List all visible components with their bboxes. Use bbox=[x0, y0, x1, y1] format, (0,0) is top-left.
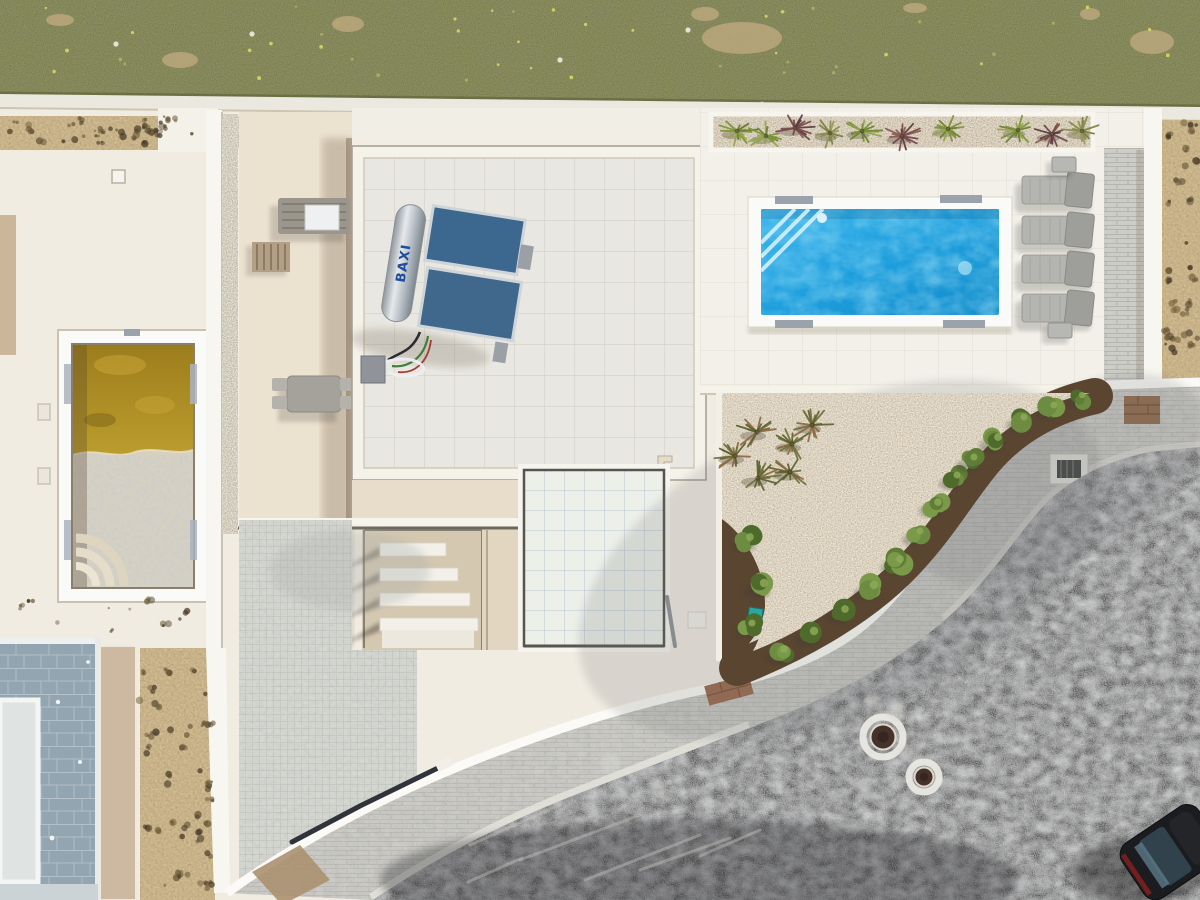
weed bbox=[1164, 343, 1167, 346]
grass-flower bbox=[65, 49, 69, 53]
weed bbox=[204, 850, 210, 856]
weed bbox=[1174, 336, 1181, 343]
grass-flower bbox=[631, 29, 634, 32]
skimmer-lid bbox=[817, 213, 827, 223]
weed bbox=[142, 126, 146, 130]
weed bbox=[1173, 306, 1181, 314]
weed bbox=[1161, 328, 1167, 334]
weed bbox=[141, 669, 145, 673]
weed bbox=[1188, 265, 1193, 270]
murky-blotch bbox=[135, 396, 175, 414]
white-stone bbox=[557, 57, 562, 62]
shrub-highlight bbox=[780, 645, 788, 653]
weed bbox=[1188, 127, 1195, 134]
chalk-mark bbox=[865, 693, 879, 707]
water-edge-shade bbox=[761, 209, 999, 219]
weed bbox=[79, 121, 84, 126]
weed bbox=[177, 875, 181, 879]
grass-flower bbox=[497, 63, 500, 66]
weed bbox=[1185, 301, 1192, 308]
grass-flower bbox=[453, 17, 456, 20]
shrub-highlight bbox=[934, 498, 942, 506]
weed bbox=[208, 880, 212, 884]
lounger-backrest bbox=[1064, 290, 1094, 327]
weed bbox=[197, 768, 202, 773]
pool-grate bbox=[64, 364, 71, 404]
wall-shadow-on-deck bbox=[1136, 150, 1144, 390]
grass-flower bbox=[980, 62, 983, 65]
weed bbox=[1168, 300, 1175, 307]
shrub-highlight bbox=[896, 555, 904, 563]
roof-hatch-marker bbox=[112, 170, 125, 183]
grass-flower bbox=[512, 10, 515, 13]
weed bbox=[1182, 162, 1189, 169]
plant-center bbox=[789, 441, 794, 446]
main-roof: BAXI bbox=[348, 138, 706, 480]
mid-wall bbox=[482, 530, 522, 650]
grass-flower bbox=[733, 32, 735, 34]
shrub-highlight bbox=[1051, 402, 1058, 409]
weed bbox=[1192, 158, 1198, 164]
aerial-photo-stage: BAXI bbox=[0, 0, 1200, 900]
grass-flower bbox=[376, 73, 380, 77]
weed bbox=[1165, 267, 1172, 274]
weed bbox=[144, 598, 150, 604]
grass-flower bbox=[1052, 22, 1055, 25]
weed bbox=[12, 121, 15, 124]
roof-speck bbox=[50, 836, 55, 841]
chalk-mark bbox=[600, 752, 620, 772]
weed bbox=[1164, 335, 1170, 341]
grass-flower bbox=[123, 62, 126, 65]
weed bbox=[167, 726, 174, 733]
plant-leaf bbox=[830, 134, 831, 140]
weed bbox=[1181, 331, 1188, 338]
utility-block bbox=[38, 468, 50, 484]
grass-flower bbox=[248, 49, 252, 53]
weed bbox=[1186, 198, 1193, 205]
plant-leaf bbox=[950, 128, 956, 129]
grass-flower bbox=[811, 6, 814, 9]
shrub-highlight bbox=[810, 627, 818, 635]
grass-flower bbox=[783, 71, 786, 74]
dirt-patch bbox=[691, 7, 719, 21]
roof-speck bbox=[56, 700, 60, 704]
grass-flower bbox=[335, 21, 338, 24]
weed bbox=[1168, 345, 1175, 352]
weed bbox=[145, 825, 151, 831]
weed bbox=[184, 732, 190, 738]
plant-leaf bbox=[1054, 133, 1060, 134]
weed bbox=[67, 124, 71, 128]
plant-center bbox=[754, 429, 759, 434]
plant-center bbox=[732, 453, 737, 458]
grass-flower bbox=[552, 8, 555, 11]
plant-center bbox=[764, 134, 769, 139]
grass-flower bbox=[781, 10, 785, 14]
chair bbox=[272, 378, 287, 391]
weed bbox=[27, 600, 30, 603]
weed bbox=[97, 135, 100, 138]
dirt-patch bbox=[903, 3, 927, 13]
shrub-highlight bbox=[1021, 414, 1028, 421]
grass-flower bbox=[584, 23, 587, 26]
weed bbox=[1194, 277, 1198, 281]
weed bbox=[165, 118, 171, 124]
roof-speck bbox=[78, 760, 82, 764]
weed bbox=[164, 780, 172, 788]
grass-flower bbox=[765, 15, 768, 18]
utility-block bbox=[38, 404, 50, 420]
grass-flower bbox=[1086, 6, 1090, 10]
perimeter-wall-right bbox=[1144, 108, 1162, 390]
shrub-highlight bbox=[870, 581, 878, 589]
weed bbox=[1166, 201, 1171, 206]
grass-flower bbox=[351, 58, 354, 61]
pool-grate bbox=[775, 196, 813, 204]
plant-leaf bbox=[890, 136, 900, 137]
shrub-highlight bbox=[954, 472, 961, 479]
plant-leaf bbox=[862, 132, 863, 138]
weed bbox=[197, 835, 204, 842]
construction-pool bbox=[38, 329, 208, 602]
grass-flower bbox=[319, 45, 323, 49]
plant-center bbox=[787, 469, 792, 474]
white-stone bbox=[685, 27, 690, 32]
grass-strip bbox=[0, 0, 1200, 108]
weed bbox=[205, 886, 210, 891]
weed bbox=[94, 130, 96, 132]
shrub-highlight bbox=[1079, 392, 1085, 398]
weed bbox=[174, 119, 177, 122]
plant-leaf bbox=[781, 128, 793, 129]
junction-box bbox=[361, 356, 385, 383]
weed bbox=[101, 131, 104, 134]
weed bbox=[203, 692, 207, 696]
weed bbox=[143, 750, 150, 757]
grass-flower bbox=[569, 75, 573, 79]
weed bbox=[158, 123, 165, 130]
weed bbox=[1166, 281, 1169, 284]
weed bbox=[181, 825, 187, 831]
weed bbox=[148, 734, 154, 740]
skimmer-lid bbox=[958, 261, 972, 275]
weed bbox=[31, 599, 35, 603]
grass-flower bbox=[530, 67, 533, 70]
weed bbox=[190, 132, 193, 135]
roof-speck bbox=[86, 660, 90, 664]
plant-leaf bbox=[794, 120, 795, 126]
weed bbox=[184, 608, 190, 614]
dirt-patch bbox=[162, 52, 198, 68]
grass-flower bbox=[491, 9, 494, 12]
weed bbox=[152, 685, 157, 690]
weed bbox=[201, 724, 204, 727]
tan-block bbox=[0, 215, 16, 355]
weed bbox=[188, 724, 193, 729]
ac-unit bbox=[305, 205, 339, 230]
lounger-table bbox=[1048, 323, 1072, 338]
grass-flower bbox=[707, 40, 710, 43]
weed bbox=[1184, 241, 1188, 245]
weed bbox=[178, 617, 181, 620]
weed bbox=[1185, 312, 1189, 316]
plant-leaf bbox=[814, 424, 833, 425]
weed bbox=[55, 620, 59, 624]
chair bbox=[272, 396, 287, 409]
pool-grate bbox=[943, 320, 985, 328]
weed bbox=[1166, 134, 1172, 140]
weed bbox=[133, 131, 140, 138]
weed bbox=[203, 880, 208, 885]
weed bbox=[1187, 341, 1193, 347]
weed bbox=[128, 608, 131, 611]
weed bbox=[1194, 123, 1198, 127]
wall-top-section bbox=[206, 110, 222, 648]
plant-center bbox=[809, 422, 814, 427]
dining-table bbox=[287, 376, 341, 412]
plant-leaf bbox=[1081, 132, 1082, 138]
dirt-patch bbox=[702, 22, 782, 54]
chalk-mark bbox=[653, 783, 667, 797]
grass-flower bbox=[775, 52, 778, 55]
weed bbox=[100, 141, 105, 146]
weed bbox=[185, 872, 191, 878]
weed bbox=[1182, 145, 1190, 153]
grass-flower bbox=[457, 29, 460, 32]
dirt-patch bbox=[46, 14, 74, 26]
weed bbox=[163, 884, 166, 887]
lounger-table bbox=[1052, 157, 1076, 172]
weed bbox=[210, 720, 215, 725]
chalk-mark bbox=[887, 703, 905, 721]
grass-flower bbox=[119, 58, 123, 62]
weed bbox=[40, 139, 47, 146]
grass-flower bbox=[786, 61, 789, 64]
grass-flower bbox=[269, 42, 273, 46]
weed bbox=[168, 775, 171, 778]
plant-center bbox=[755, 475, 760, 480]
pool-deck bbox=[700, 108, 1200, 394]
plant-center bbox=[828, 131, 833, 136]
grass-flower bbox=[131, 31, 134, 34]
weed bbox=[1180, 119, 1187, 126]
gravel-joint-strip bbox=[222, 114, 238, 534]
shrub-highlight bbox=[760, 579, 768, 587]
stair-tread bbox=[380, 618, 478, 631]
eave-strip bbox=[0, 884, 98, 900]
grass-flower bbox=[295, 6, 297, 8]
pool-grate bbox=[64, 520, 71, 560]
plant-leaf bbox=[792, 471, 801, 472]
weed bbox=[163, 115, 165, 117]
weed bbox=[162, 624, 165, 627]
weed bbox=[110, 630, 113, 633]
pool-grate bbox=[190, 520, 197, 560]
shrub-highlight bbox=[994, 433, 1002, 441]
weed bbox=[136, 697, 144, 705]
shrub-highlight bbox=[746, 533, 754, 541]
weed bbox=[179, 834, 185, 840]
weed bbox=[156, 704, 163, 711]
lounger-backrest bbox=[1064, 251, 1094, 288]
scene-svg: BAXI bbox=[0, 0, 1200, 900]
grass-flower bbox=[52, 70, 55, 73]
weed bbox=[195, 815, 200, 820]
plant-leaf bbox=[766, 127, 767, 135]
grass-flower bbox=[992, 52, 996, 56]
weed bbox=[1195, 335, 1200, 341]
weed bbox=[209, 796, 214, 801]
weed bbox=[115, 129, 118, 132]
planter-strip bbox=[711, 114, 1099, 150]
pool-grate bbox=[775, 320, 813, 328]
manhole-center bbox=[877, 731, 888, 742]
swimming-pool bbox=[748, 195, 1012, 334]
weed bbox=[197, 880, 203, 886]
beige-strip bbox=[100, 646, 136, 900]
weed bbox=[148, 748, 151, 751]
pool-grate bbox=[124, 329, 140, 336]
skylight-panel bbox=[0, 700, 38, 882]
plant-leaf bbox=[1016, 123, 1017, 128]
lounger-backrest bbox=[1064, 212, 1094, 249]
weed bbox=[165, 669, 171, 675]
dirt-patch bbox=[1080, 8, 1100, 20]
weed bbox=[190, 667, 195, 672]
weed bbox=[94, 134, 97, 137]
weed bbox=[1175, 179, 1182, 186]
manhole-center bbox=[920, 773, 929, 782]
plant-center bbox=[946, 127, 951, 132]
plant-center bbox=[900, 134, 905, 139]
weed bbox=[1180, 311, 1186, 317]
grass-flower bbox=[884, 53, 888, 57]
weed bbox=[195, 829, 201, 835]
shrub-highlight bbox=[749, 620, 756, 627]
grass-flower bbox=[45, 7, 47, 9]
white-stone bbox=[113, 41, 118, 46]
plant-center bbox=[735, 129, 740, 134]
weed bbox=[157, 133, 162, 138]
weed bbox=[119, 133, 126, 140]
weed bbox=[205, 797, 210, 802]
grass-flower bbox=[835, 65, 838, 68]
plant-center bbox=[1016, 128, 1021, 133]
plant-center bbox=[1080, 129, 1085, 134]
weed bbox=[82, 134, 86, 138]
pool-grate bbox=[940, 195, 982, 203]
pool-grate bbox=[190, 364, 197, 404]
ridge-cap-top bbox=[0, 638, 100, 644]
shrub-highlight bbox=[971, 454, 978, 461]
weed bbox=[143, 141, 147, 145]
weed bbox=[108, 607, 110, 609]
weed bbox=[30, 129, 35, 134]
weed bbox=[98, 126, 103, 131]
grass-flower bbox=[1148, 28, 1151, 31]
roof-tile-grid bbox=[364, 158, 694, 468]
grass-flower bbox=[517, 40, 520, 43]
grass-flower bbox=[1166, 53, 1170, 57]
weed bbox=[180, 744, 186, 750]
plant-leaf bbox=[737, 456, 750, 457]
weed bbox=[108, 126, 113, 131]
chalk-mark bbox=[899, 746, 911, 758]
stair-landing bbox=[382, 630, 474, 648]
slate-roof bbox=[0, 638, 101, 900]
weed bbox=[73, 138, 78, 143]
dirt-patch bbox=[1130, 30, 1174, 54]
weed bbox=[144, 118, 147, 121]
shrub-highlight bbox=[841, 605, 849, 613]
weed bbox=[147, 734, 149, 736]
grass-flower bbox=[257, 76, 261, 80]
weed bbox=[169, 819, 176, 826]
murky-blotch bbox=[84, 413, 116, 427]
weed bbox=[156, 829, 162, 835]
weed bbox=[71, 122, 75, 126]
grass-flower bbox=[918, 20, 921, 23]
plant-center bbox=[860, 129, 865, 134]
grass-flower bbox=[719, 65, 722, 68]
weed bbox=[96, 141, 100, 145]
weed bbox=[19, 604, 22, 607]
weed bbox=[205, 780, 212, 787]
white-stone bbox=[249, 31, 254, 36]
weed bbox=[62, 139, 66, 143]
grass-flower bbox=[832, 71, 835, 74]
weed bbox=[15, 121, 18, 124]
plant-center bbox=[1050, 132, 1055, 137]
murky-blotch bbox=[94, 355, 146, 375]
mosaic-stain bbox=[270, 530, 430, 610]
weed bbox=[8, 129, 13, 134]
plant-center bbox=[793, 126, 798, 131]
grass-flower bbox=[465, 79, 468, 82]
grass-flower bbox=[320, 33, 323, 36]
weed bbox=[203, 821, 208, 826]
sun-loungers bbox=[1015, 157, 1095, 344]
weed bbox=[145, 127, 151, 133]
shrub-highlight bbox=[917, 528, 924, 535]
